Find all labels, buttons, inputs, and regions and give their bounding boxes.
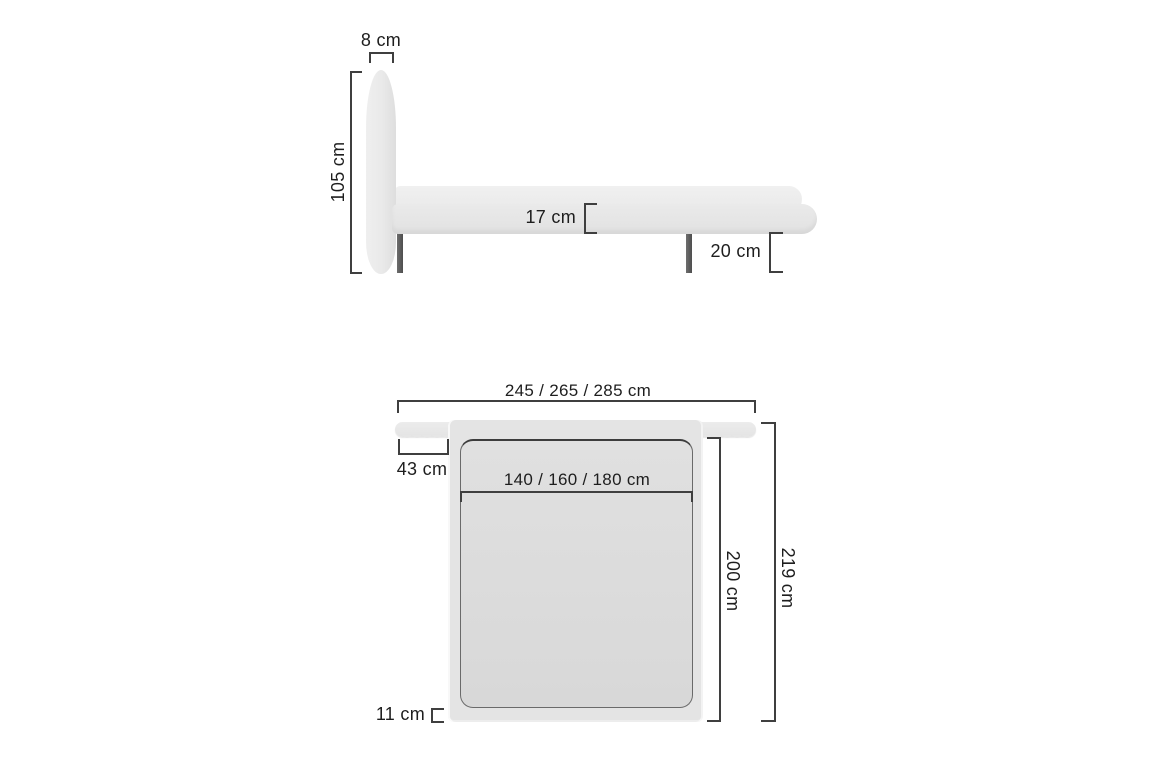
mattress-width-label: 140 / 160 / 180 cm	[461, 470, 693, 490]
foot-rail-bracket	[431, 708, 444, 723]
total-width-bracket	[397, 400, 756, 413]
mattress-width-bracket	[460, 491, 693, 502]
foot-rail-label: 11 cm	[350, 704, 425, 724]
total-width-label: 245 / 265 / 285 cm	[450, 381, 706, 401]
bed-dimensions-diagram: 8 cm 105 cm 17 cm 20 cm 245 / 265 / 285 …	[0, 0, 1152, 768]
overhang-bracket	[398, 439, 449, 455]
top-view: 245 / 265 / 285 cm 43 cm 140 / 160 / 180…	[0, 0, 1152, 768]
total-length-bracket	[761, 422, 776, 722]
mattress-length-bracket	[707, 437, 721, 722]
mattress-length-label: 200 cm	[723, 541, 743, 621]
overhang-label: 43 cm	[384, 459, 460, 479]
total-length-label: 219 cm	[778, 538, 798, 618]
